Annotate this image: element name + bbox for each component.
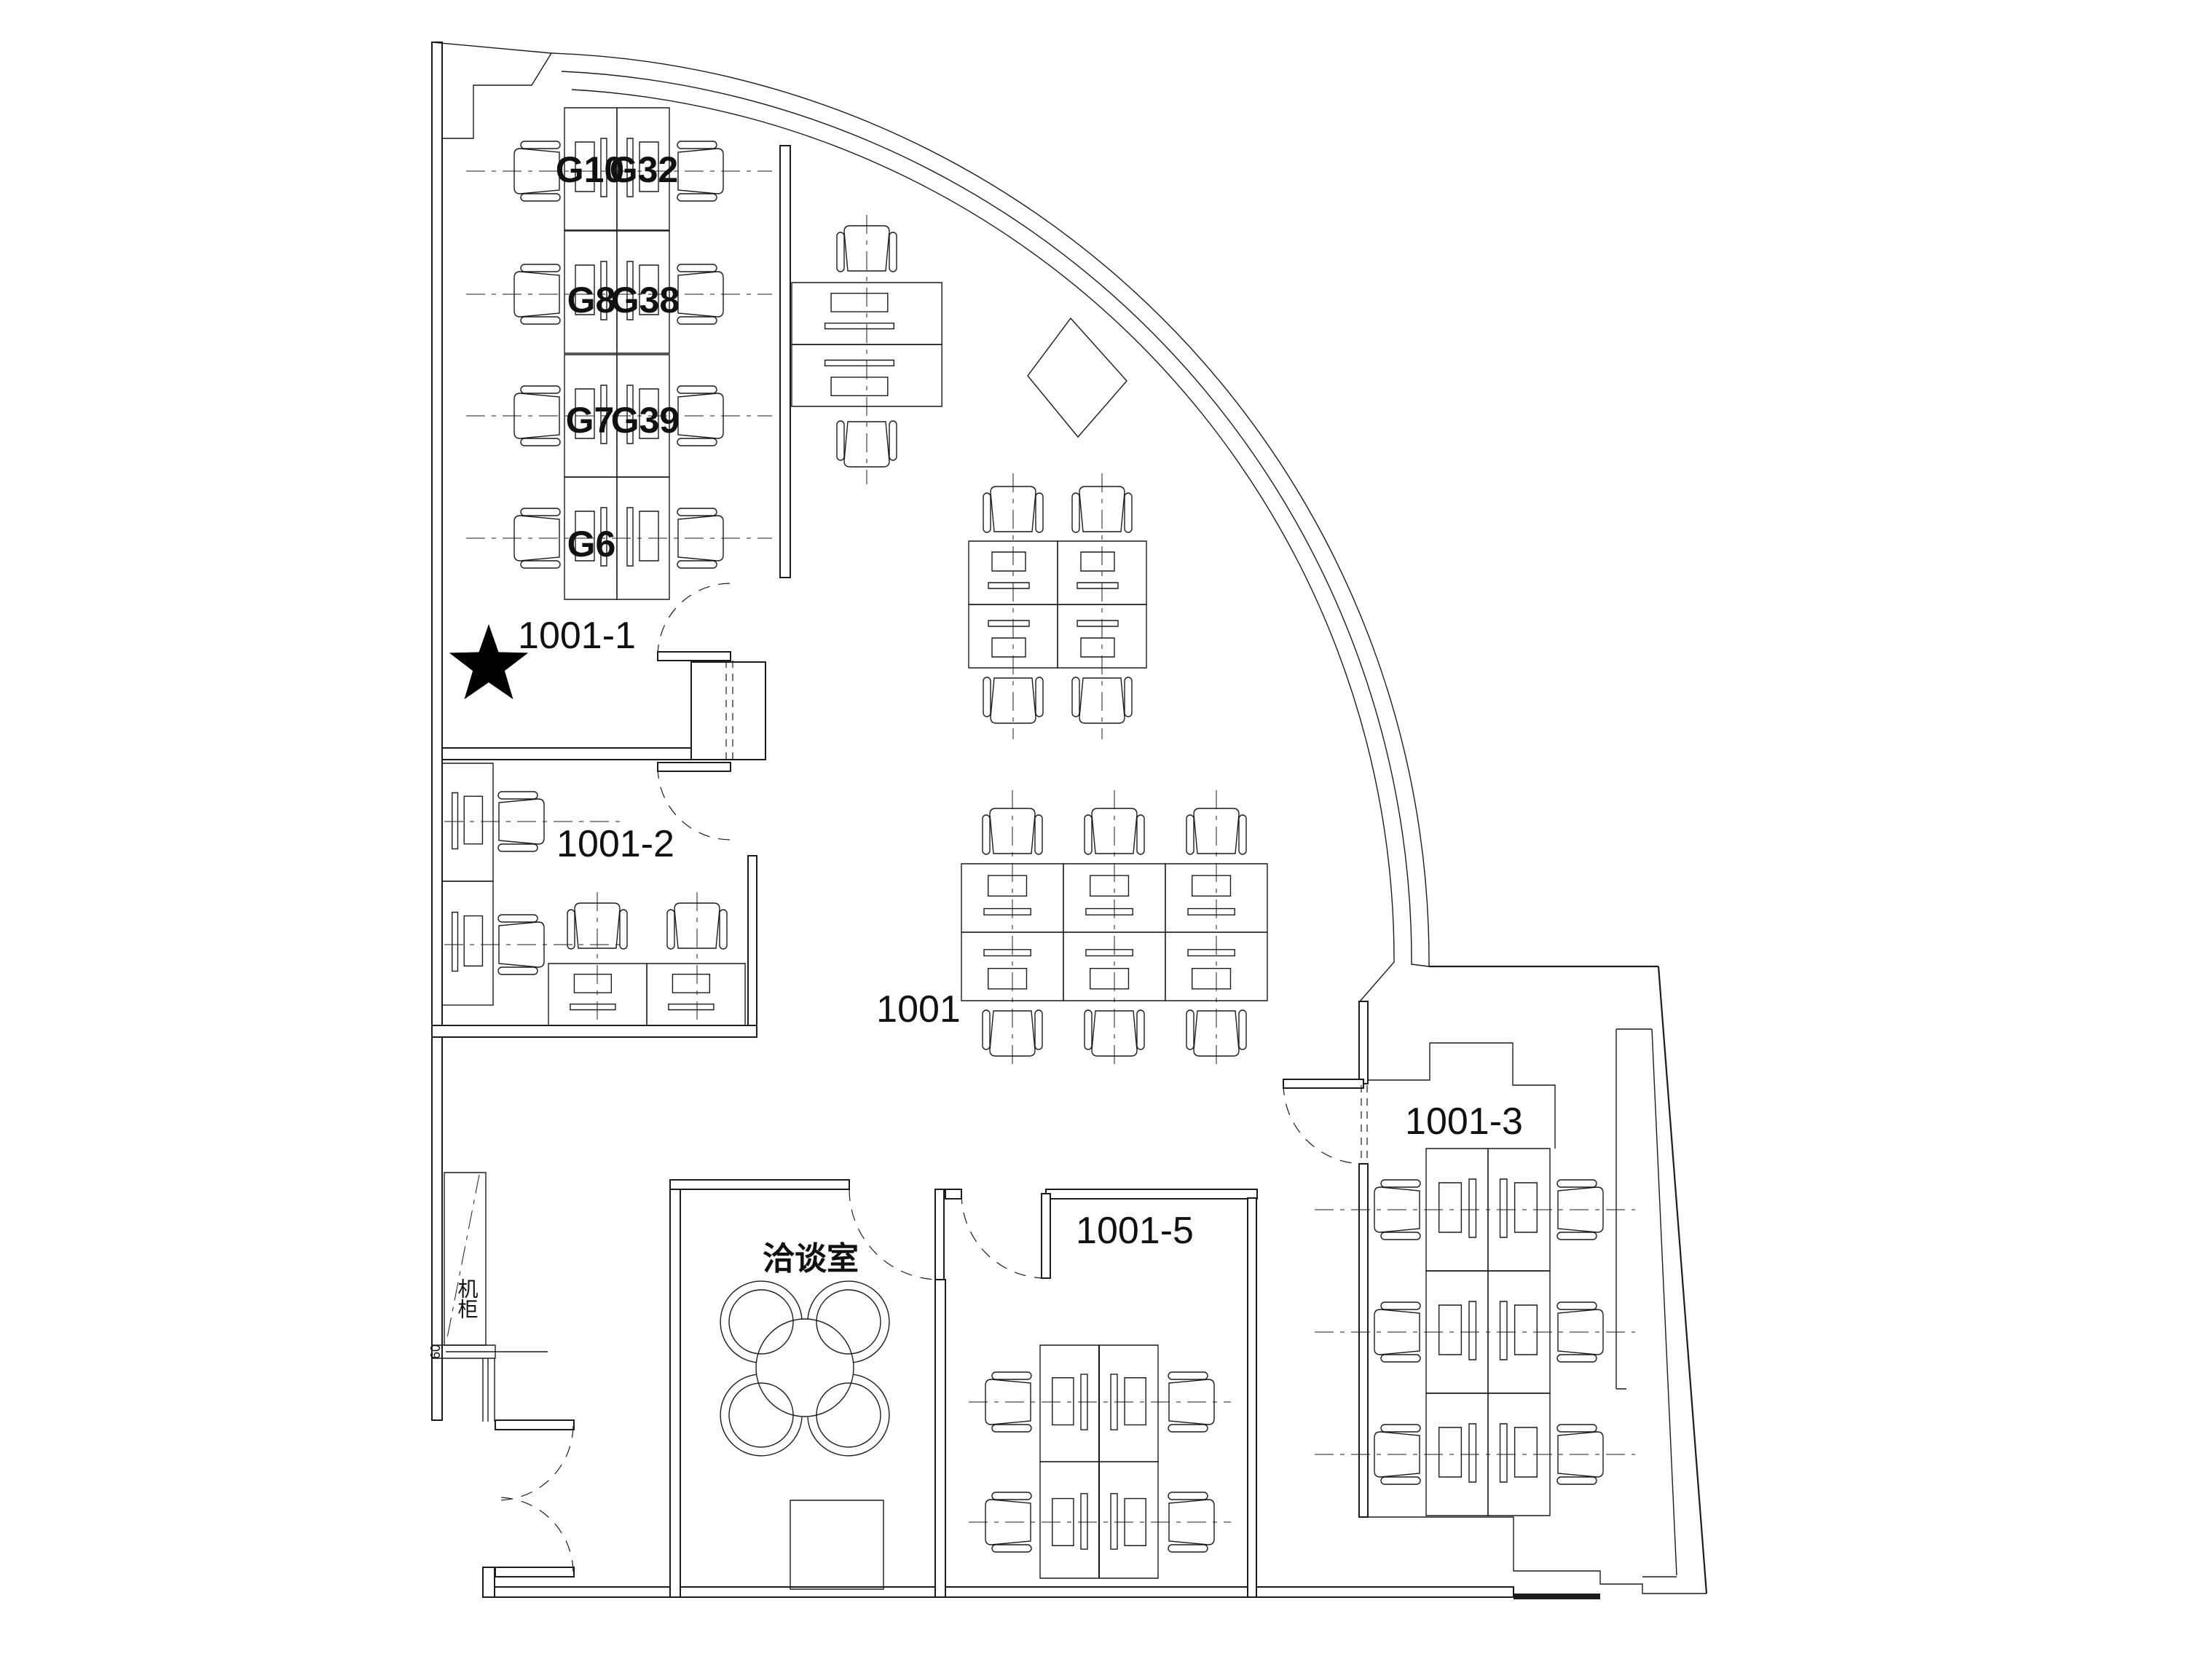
- wall-1001-5-top-jamb: [945, 1189, 961, 1199]
- door-leaf-1001-3: [1283, 1079, 1363, 1088]
- cabinet-label: 机柜: [456, 1278, 479, 1319]
- pillar: [691, 662, 765, 760]
- wall-1001-1-right: [780, 146, 790, 578]
- room-label-1001: 1001: [876, 988, 961, 1031]
- open-area-1001: 1001: [792, 215, 1267, 1071]
- door-arc-1001-3: [1283, 1084, 1363, 1164]
- desk-cell: [548, 964, 647, 1025]
- dimension-label: 60: [428, 1344, 443, 1359]
- wall-corridor-right-lower: [1359, 1164, 1368, 1517]
- door-leaf-entry-lower: [495, 1567, 574, 1577]
- room-label-1001-3: 1001-3: [1405, 1100, 1523, 1143]
- desk-cell: [1099, 1462, 1158, 1578]
- facade-band-line2: [572, 90, 1394, 1001]
- doors: [495, 583, 1367, 1577]
- door-frame-dashes-1001-3: [1361, 1085, 1367, 1162]
- floor-plan-canvas: G10 G32 G8 G38 G7 G39 G6 1001-1 1001-2: [0, 0, 2212, 1678]
- room-label-1001-1: 1001-1: [518, 615, 636, 657]
- door-leaf-1001-5: [1042, 1194, 1050, 1278]
- column-diamond: [1028, 318, 1127, 437]
- workstation-label-g7: G7: [566, 400, 615, 441]
- workstation-label-g39: G39: [611, 400, 680, 441]
- wall-right-slant: [1658, 966, 1707, 1594]
- door-arc-1001-5: [961, 1194, 1046, 1278]
- wall-left-stub: [483, 1567, 495, 1597]
- wall-bottom-right-steps: [1368, 1517, 1707, 1594]
- door-arc-1001-1: [658, 583, 731, 656]
- wall-meeting-top: [670, 1180, 849, 1189]
- door-arc-meeting: [849, 1189, 940, 1280]
- star-marker: [449, 624, 528, 699]
- room-label-meeting: 洽谈室: [763, 1240, 859, 1277]
- workstation-label-g32: G32: [610, 149, 679, 190]
- door-leaf-1001-2: [658, 763, 731, 771]
- centerline: [1012, 790, 1216, 1071]
- door-leaf-1001-1: [658, 652, 731, 661]
- wall-meeting-left: [670, 1180, 680, 1597]
- desk-cell: [1040, 1345, 1099, 1462]
- room-label-1001-5: 1001-5: [1076, 1210, 1194, 1252]
- wall-1001-1-bottom: [442, 748, 691, 760]
- desk-cell: [442, 881, 493, 1005]
- wall-meeting-divider: [935, 1280, 945, 1597]
- wall-top-edge: [432, 42, 551, 53]
- wall-corridor-right-upper: [1359, 1001, 1368, 1084]
- workstation-label-g8: G8: [567, 280, 616, 320]
- desk-cell: [1099, 1345, 1158, 1462]
- side-cabinet: [790, 1500, 883, 1589]
- door-arc-entry-lower: [497, 1497, 573, 1572]
- facade-band-line1: [562, 71, 1429, 966]
- wall-top-step: [442, 53, 551, 138]
- round-chair-icon: [797, 1364, 906, 1473]
- wall-1001-5-top: [1046, 1189, 1257, 1199]
- round-chair-icon: [797, 1264, 906, 1374]
- wall-bottom: [483, 1587, 1514, 1597]
- room-label-1001-2: 1001-2: [556, 823, 674, 865]
- door-leaf-entry-upper: [495, 1420, 574, 1430]
- door-arc-entry-upper: [497, 1426, 573, 1500]
- room-1001-2: 1001-2: [442, 763, 745, 1025]
- wall-1001-2-right: [748, 856, 757, 1027]
- desk-cell: [442, 763, 493, 881]
- meeting-room: 洽谈室: [704, 1240, 906, 1589]
- door-leaf-meeting: [935, 1189, 944, 1280]
- wall-left: [432, 42, 442, 1420]
- desk-cell: [647, 964, 745, 1025]
- wall-step-below-cabinet: [483, 1358, 495, 1422]
- round-table: [756, 1319, 854, 1417]
- round-chair-icon: [704, 1364, 813, 1473]
- shaft-walls: [1616, 1029, 1677, 1577]
- wall-bottom-right-thick: [1514, 1594, 1600, 1599]
- wall-1001-2-bottom: [432, 1025, 757, 1037]
- outer-walls: [432, 42, 1707, 1599]
- desk-cell: [1040, 1462, 1099, 1578]
- room-1001-1: G10 G32 G8 G38 G7 G39 G6 1001-1: [449, 108, 772, 699]
- workstation-label-g6: G6: [567, 524, 616, 564]
- room-1001-5: 1001-5: [969, 1210, 1231, 1578]
- round-chair-icon: [704, 1264, 813, 1374]
- server-cabinet: 机柜 60: [428, 1173, 548, 1359]
- workstation-label-g38: G38: [611, 280, 680, 320]
- wall-corridor-left: [1248, 1198, 1256, 1597]
